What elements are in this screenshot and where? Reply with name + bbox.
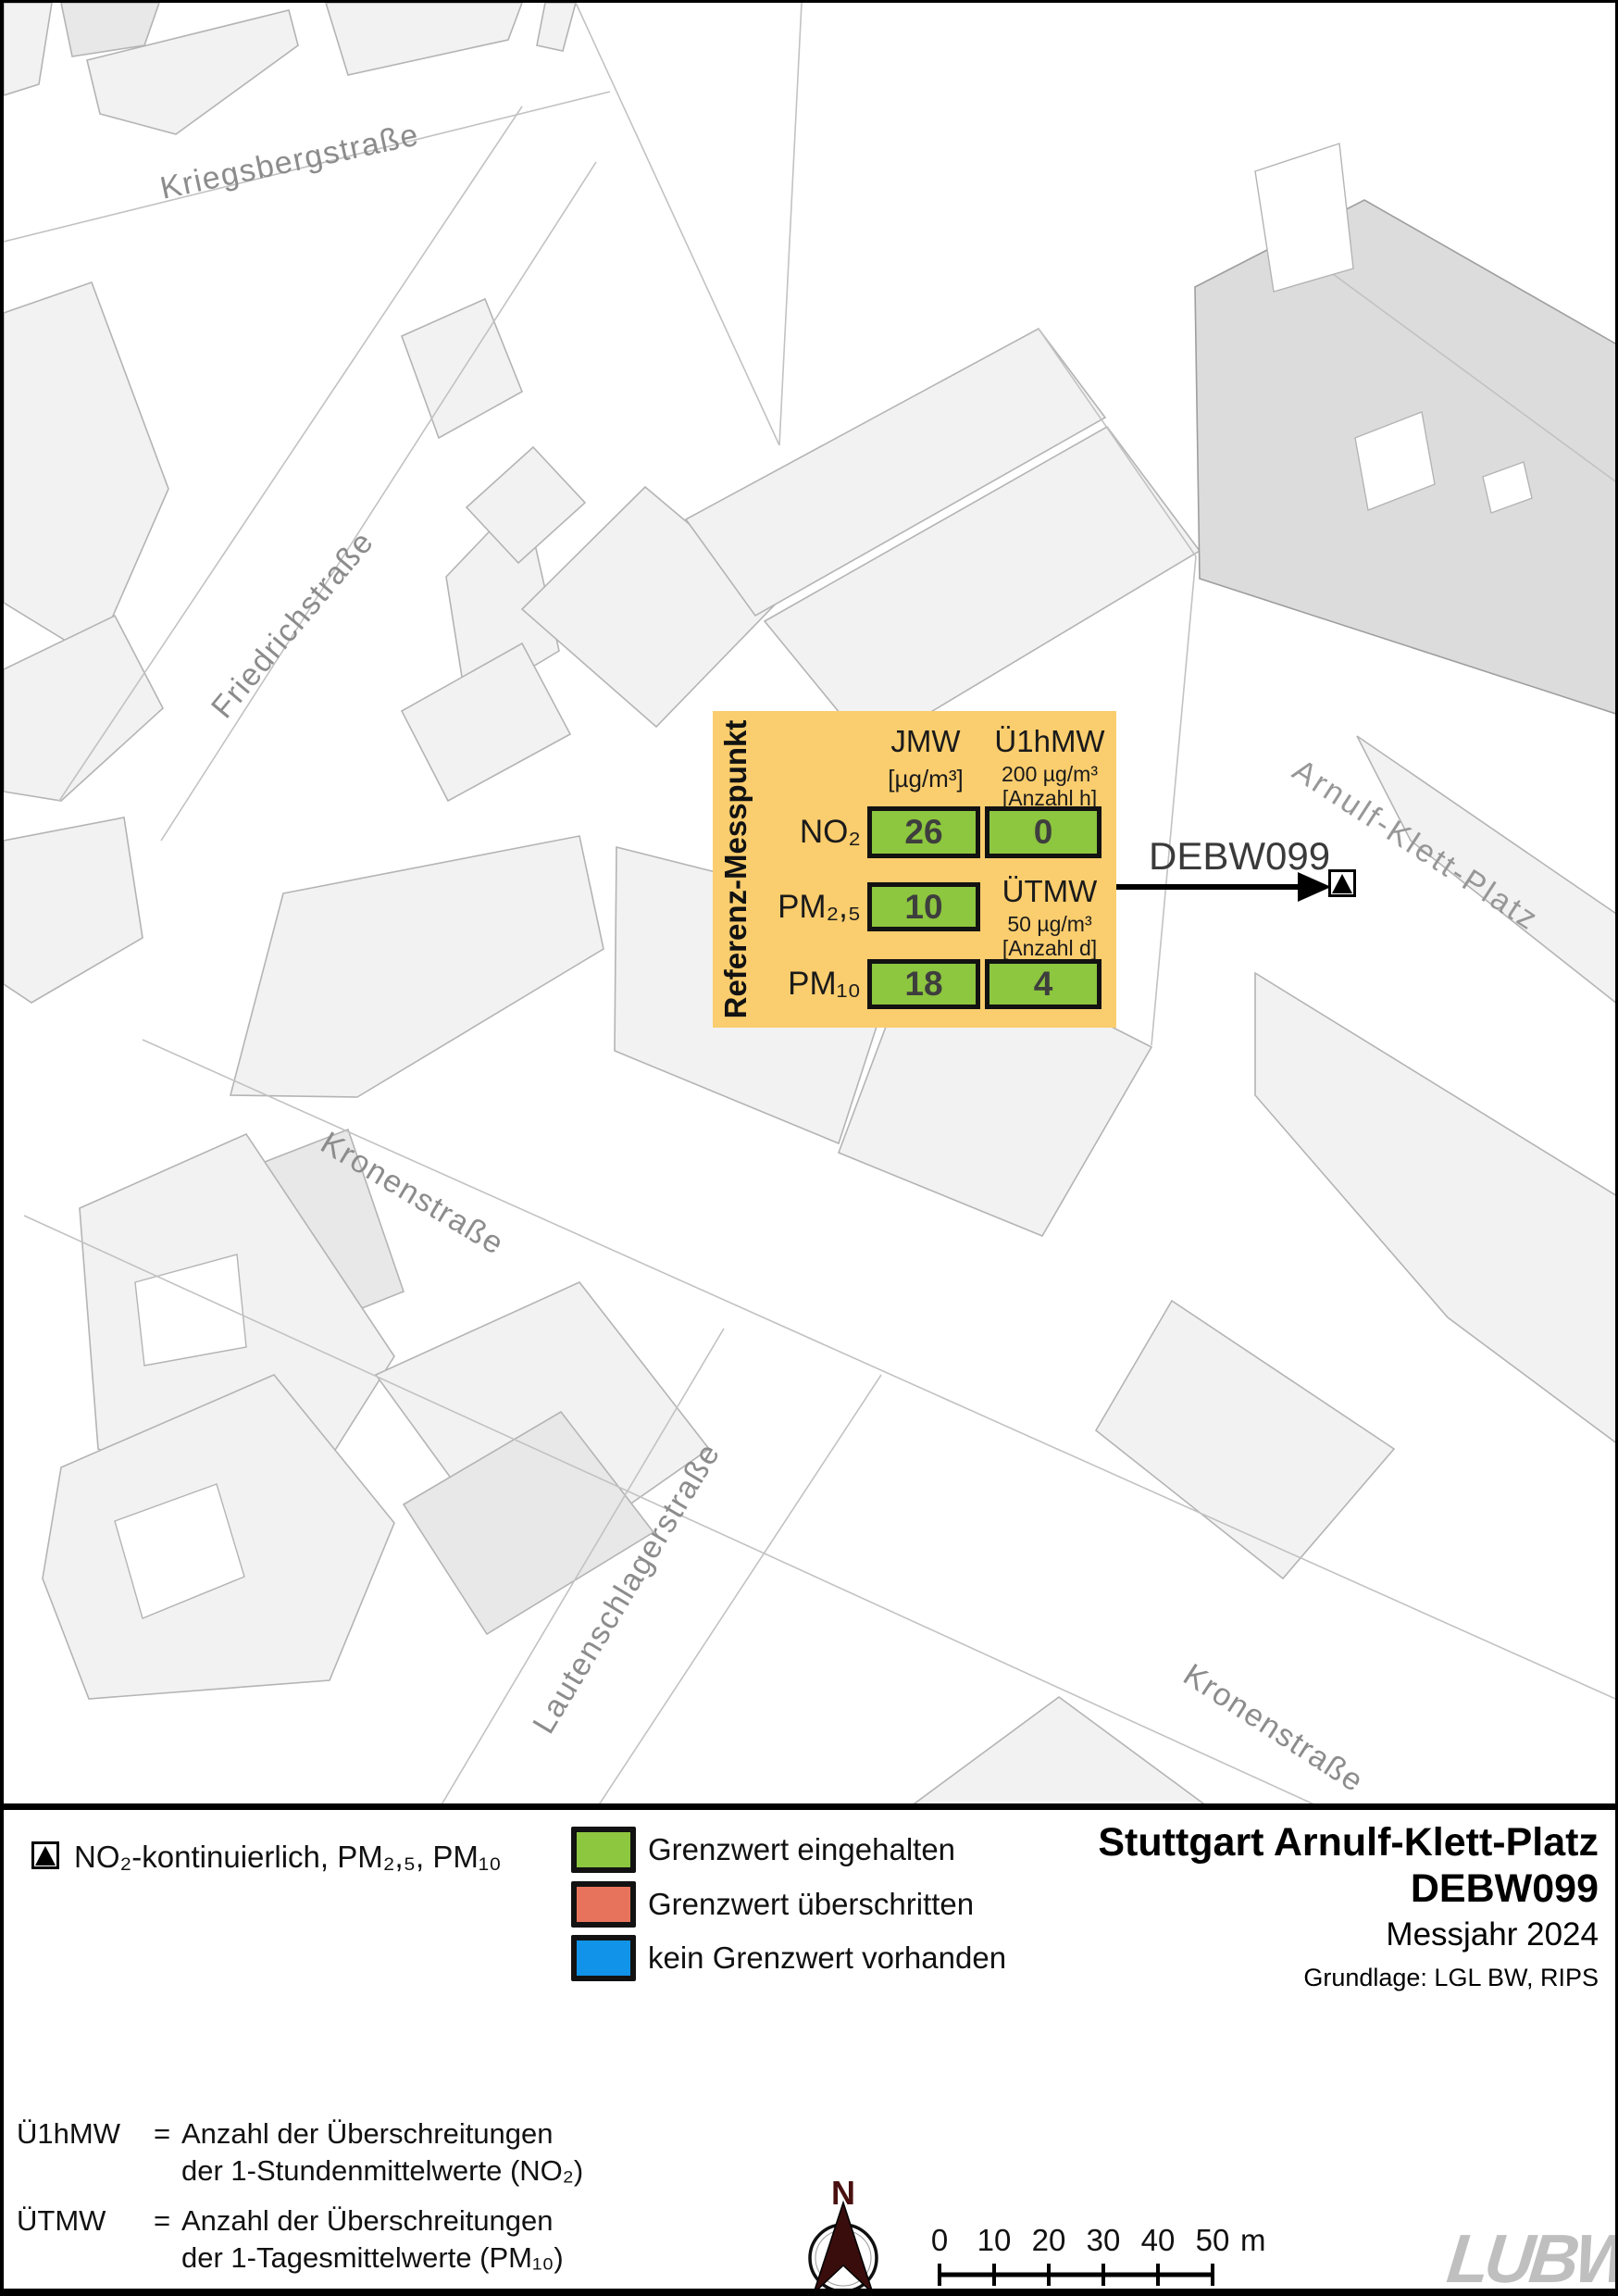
title-block: Stuttgart Arnulf-Klett-Platz DEBW099 Mes… (1098, 1819, 1599, 1997)
value-pm10-jmw: 18 (867, 959, 980, 1009)
sheet-title: Stuttgart Arnulf-Klett-Platz (1098, 1819, 1599, 1865)
scale-tick-label: 20 (1032, 2223, 1066, 2257)
legend-swatch-compliant (571, 1827, 636, 1873)
sheet-station-id: DEBW099 (1098, 1865, 1599, 1912)
legend-label-no-limit: kein Grenzwert vorhanden (648, 1935, 1006, 1981)
scale-tick-label: 50 (1196, 2223, 1230, 2257)
footnote-equals: = (143, 2115, 181, 2190)
footnote-term: ÜTMW (17, 2202, 143, 2277)
data-source: Grundlage: LGL BW, RIPS (1098, 1958, 1599, 1997)
pollutant-label-pm25: PM₂,₅ (750, 882, 861, 931)
utmw-column-header: ÜTMW (987, 874, 1113, 909)
footnote-definition: Anzahl der Überschreitungen der 1-Stunde… (181, 2115, 583, 2190)
value-no2-exceedances: 0 (985, 806, 1101, 858)
pollutant-label-pm10: PM₁₀ (750, 959, 861, 1009)
scale-bar: 0 10 20 30 40 50 m (918, 2217, 1316, 2291)
map-area: Kriegsbergstraße Friedrichstraße Arnulf-… (4, 3, 1615, 1803)
value-no2-jmw: 26 (867, 806, 980, 858)
legend-station-marker-icon (31, 1841, 59, 1869)
legend-label-compliant: Grenzwert eingehalten (648, 1827, 955, 1873)
footnote-utmw: ÜTMW = Anzahl der Überschreitungen der 1… (17, 2202, 564, 2277)
footnote-equals: = (143, 2202, 181, 2277)
scale-tick-label: 0 (931, 2223, 948, 2257)
map-sheet: Kriegsbergstraße Friedrichstraße Arnulf-… (0, 0, 1618, 2296)
callout-arrow (1116, 862, 1338, 912)
jmw-unit: [µg/m³] (861, 765, 990, 793)
measurement-info-box: Referenz-Messpunkt JMW [µg/m³] Ü1hMW 200… (713, 711, 1116, 1028)
legend-label-exceeded: Grenzwert überschritten (648, 1881, 974, 1928)
legend-swatch-no-limit (571, 1935, 636, 1981)
utmw-unit: [Anzahl d] (987, 936, 1113, 961)
value-pm10-exceedances: 4 (985, 959, 1101, 1009)
jmw-column-header: JMW (861, 724, 990, 759)
street-label-kronenstrasse-east: Kronenstraße (1177, 1657, 1371, 1800)
street-label-kriegsbergstrasse: Kriegsbergstraße (157, 117, 422, 206)
legend-swatch-exceeded (571, 1881, 636, 1928)
footnote-term: Ü1hMW (17, 2115, 143, 2190)
measurement-year: Messjahr 2024 (1098, 1912, 1599, 1958)
value-pm25-jmw: 10 (867, 882, 980, 931)
north-arrow: N (801, 2165, 886, 2296)
utmw-limit: 50 µg/m³ (987, 912, 1113, 937)
scale-unit-label: m (1240, 2223, 1266, 2257)
footnote-u1hmw: Ü1hMW = Anzahl der Überschreitungen der … (17, 2115, 583, 2190)
pollutant-label-no2: NO₂ (750, 806, 861, 858)
footnote-definition: Anzahl der Überschreitungen der 1-Tagesm… (181, 2202, 564, 2277)
scale-tick-label: 40 (1141, 2223, 1176, 2257)
scale-tick-label: 30 (1087, 2223, 1121, 2257)
station-marker-icon (1328, 869, 1356, 897)
legend-marker-label: NO₂-kontinuierlich, PM₂,₅, PM₁₀ (74, 1840, 502, 1875)
scale-tick-label: 10 (977, 2223, 1012, 2257)
street-label-friedrichstrasse: Friedrichstraße (205, 524, 381, 725)
u1hmw-limit: 200 µg/m³ (987, 762, 1113, 787)
lubw-logo: LUBW (1444, 2219, 1618, 2296)
u1hmw-column-header: Ü1hMW (987, 724, 1113, 759)
